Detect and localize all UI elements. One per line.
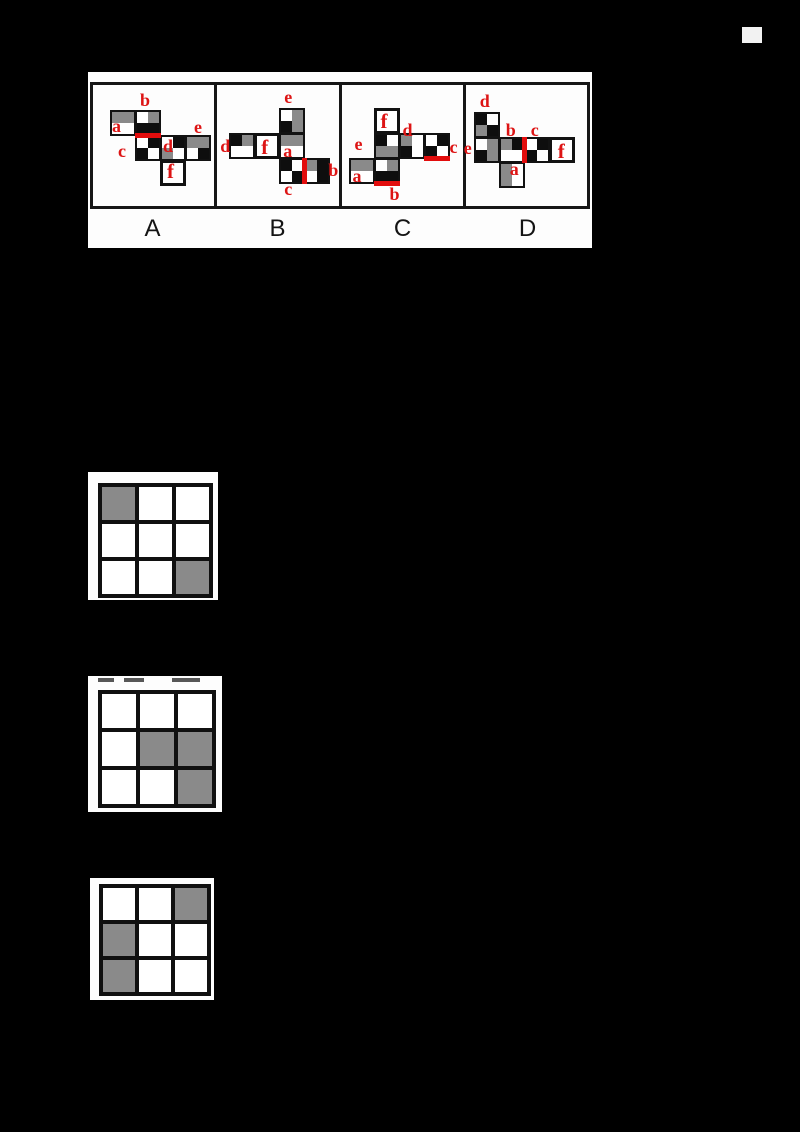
black-quadrant [198, 148, 209, 159]
face-label-e: e [194, 118, 202, 136]
shading-card-1 [88, 472, 218, 600]
black-quadrant [487, 125, 498, 136]
white-quadrant [476, 139, 487, 150]
white-quadrant [487, 114, 498, 125]
white-quadrant [137, 137, 148, 148]
shaded-cell [103, 960, 135, 992]
face-label-f: f [261, 137, 268, 158]
face-label-a: a [353, 167, 362, 185]
empty-cell [140, 694, 174, 728]
black-quadrant [231, 135, 242, 146]
white-quadrant [242, 146, 253, 157]
white-quadrant [281, 110, 292, 121]
gray-quadrant [306, 160, 317, 171]
net-face-checkered [424, 133, 450, 159]
white-quadrant [173, 148, 184, 159]
screenshot-root: baecdfedfacbfdecabdebcfa ABCD [0, 0, 800, 1132]
net-face-checkered [474, 137, 500, 163]
artifact-fleck [742, 27, 762, 43]
black-quadrant [137, 148, 148, 159]
face-label-f: f [381, 111, 388, 132]
gray-quadrant [487, 150, 498, 161]
red-fold-edge [424, 156, 450, 161]
text-smudge-artifact [172, 678, 200, 682]
empty-cell [102, 770, 136, 804]
red-fold-edge [135, 133, 161, 138]
white-quadrant [387, 135, 398, 146]
black-quadrant [376, 135, 387, 146]
white-quadrant [231, 146, 242, 157]
gray-quadrant [376, 146, 387, 157]
text-smudge-artifact [98, 678, 114, 682]
option-letter-A: A [90, 209, 215, 248]
face-label-d: d [480, 92, 490, 110]
face-label-a: a [510, 160, 519, 178]
gray-quadrant [387, 146, 398, 157]
face-label-f: f [558, 141, 565, 162]
gray-quadrant [292, 121, 303, 132]
option-cell-B[interactable]: edfacb [217, 85, 341, 206]
white-quadrant [123, 123, 134, 134]
shaded-cell [102, 487, 135, 520]
empty-cell [139, 561, 172, 594]
shaded-cell [140, 732, 174, 766]
face-label-c: c [531, 121, 539, 139]
empty-cell [139, 524, 172, 557]
empty-cell [103, 888, 135, 920]
shaded-cell [178, 770, 212, 804]
empty-cell [175, 960, 207, 992]
face-label-e: e [464, 139, 472, 157]
net-face-checkered [135, 110, 161, 136]
empty-cell [178, 694, 212, 728]
gray-quadrant [292, 110, 303, 121]
options-labels: ABCD [90, 209, 590, 248]
net-face-checkered [374, 133, 400, 159]
gray-quadrant [187, 137, 198, 148]
gray-quadrant [362, 160, 373, 171]
black-quadrant [317, 160, 328, 171]
net-face-checkered [279, 108, 305, 134]
option-cell-D[interactable]: debcfa [466, 85, 587, 206]
face-label-d: d [163, 137, 173, 155]
text-smudge-artifact [124, 678, 144, 682]
empty-cell [102, 694, 136, 728]
white-quadrant [137, 112, 148, 123]
face-label-b: b [506, 121, 516, 139]
option-cell-C[interactable]: fdecab [342, 85, 466, 206]
shading-grid-2 [98, 690, 216, 808]
face-label-b: b [390, 185, 400, 203]
option-letter-C: C [340, 209, 465, 248]
red-fold-edge [302, 158, 307, 184]
face-label-a: a [283, 142, 292, 160]
gray-quadrant [387, 160, 398, 171]
net-face-checkered [185, 135, 211, 161]
net-face-checkered [374, 158, 400, 184]
shading-card-2 [88, 676, 222, 812]
net-face-checkered [304, 158, 330, 184]
face-label-d: d [403, 121, 413, 139]
empty-cell [176, 487, 209, 520]
face-label-a: a [112, 117, 121, 135]
black-quadrant [437, 135, 448, 146]
empty-cell [176, 524, 209, 557]
black-quadrant [526, 150, 537, 161]
empty-cell [140, 770, 174, 804]
empty-cell [139, 960, 171, 992]
net-face-checkered [524, 137, 550, 163]
white-quadrant [526, 139, 537, 150]
gray-quadrant [242, 135, 253, 146]
black-quadrant [537, 139, 548, 150]
gray-quadrant [123, 112, 134, 123]
face-label-b: b [140, 91, 150, 109]
black-quadrant [148, 137, 159, 148]
option-letter-D: D [465, 209, 590, 248]
black-quadrant [281, 160, 292, 171]
gray-quadrant [292, 135, 303, 146]
net-face-checkered [279, 158, 305, 184]
shaded-cell [178, 732, 212, 766]
face-label-d: d [220, 137, 230, 155]
empty-cell [175, 924, 207, 956]
white-quadrant [148, 148, 159, 159]
black-quadrant [281, 121, 292, 132]
face-label-c: c [118, 142, 126, 160]
gray-quadrant [487, 139, 498, 150]
white-quadrant [412, 146, 423, 157]
options-card: baecdfedfacbfdecabdebcfa ABCD [88, 72, 592, 248]
gray-quadrant [148, 112, 159, 123]
white-quadrant [537, 150, 548, 161]
white-quadrant [362, 171, 373, 182]
empty-cell [139, 487, 172, 520]
shaded-cell [176, 561, 209, 594]
red-fold-edge [522, 137, 527, 163]
shaded-cell [175, 888, 207, 920]
empty-cell [102, 561, 135, 594]
face-label-e: e [284, 88, 292, 106]
net-face-checkered [135, 135, 161, 161]
gray-quadrant [198, 137, 209, 148]
option-letter-B: B [215, 209, 340, 248]
white-quadrant [187, 148, 198, 159]
white-quadrant [412, 135, 423, 146]
black-quadrant [476, 114, 487, 125]
empty-cell [102, 524, 135, 557]
empty-cell [102, 732, 136, 766]
white-quadrant [292, 146, 303, 157]
white-quadrant [306, 171, 317, 182]
face-label-c: c [284, 180, 292, 198]
black-quadrant [173, 137, 184, 148]
shading-card-3 [90, 878, 214, 1000]
shaded-cell [103, 924, 135, 956]
black-quadrant [401, 146, 412, 157]
face-label-b: b [328, 161, 338, 179]
shading-grid-1 [98, 483, 213, 598]
gray-quadrant [501, 139, 512, 150]
black-quadrant [476, 150, 487, 161]
shading-grid-3 [99, 884, 211, 996]
white-quadrant [376, 160, 387, 171]
options-box: baecdfedfacbfdecabdebcfa [90, 82, 590, 209]
net-face-checkered [229, 133, 255, 159]
empty-cell [139, 888, 171, 920]
empty-cell [139, 924, 171, 956]
face-label-f: f [167, 161, 174, 182]
face-label-c: c [450, 138, 458, 156]
net-face-checkered [474, 112, 500, 138]
gray-quadrant [476, 125, 487, 136]
face-label-e: e [355, 135, 363, 153]
option-cell-A[interactable]: baecdf [93, 85, 217, 206]
white-quadrant [426, 135, 437, 146]
black-quadrant [317, 171, 328, 182]
